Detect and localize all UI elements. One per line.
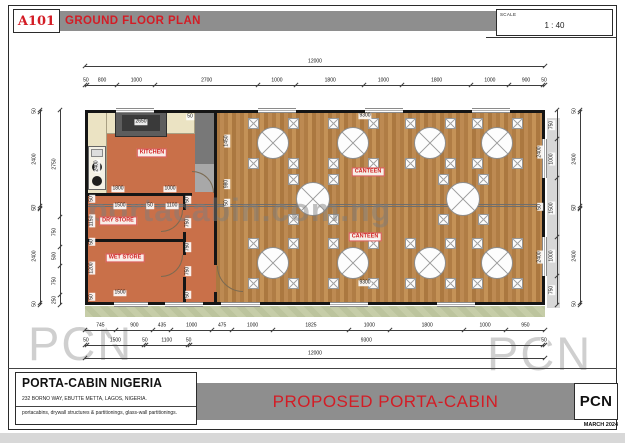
dimension-line	[85, 345, 545, 346]
room-label-canteen: CANTEEN	[352, 167, 385, 176]
grass-strip	[85, 306, 545, 317]
company-info-box: PORTA-CABIN NIGERIA 232 BORNO WAY, EBUTT…	[15, 372, 197, 425]
scale-box: SCALE 1 : 40	[496, 9, 613, 36]
dimension-label: 2400	[572, 250, 578, 263]
dimension-label: 745	[95, 323, 105, 329]
dimension-label: 2650	[134, 119, 147, 125]
drawing-title: GROUND FLOOR PLAN	[60, 15, 201, 27]
dimension-label: 1000	[377, 78, 390, 84]
logo-text: PCN	[580, 393, 613, 410]
dimension-label: 2750	[52, 157, 58, 170]
dimension-label: 1450	[224, 134, 230, 147]
room-label-kitchen: KITCHEN	[137, 148, 167, 157]
scale-label: SCALE	[500, 12, 516, 17]
watermark-url: portacabin.com.ng	[88, 192, 488, 229]
sheet-number: A101	[18, 14, 55, 29]
company-name: PORTA-CABIN NIGERIA	[22, 376, 162, 390]
dimension-label: 750	[185, 242, 191, 252]
window	[114, 302, 149, 307]
dimension-label: 2400	[32, 152, 38, 165]
dimension-label: 435	[157, 323, 167, 329]
project-title: PROPOSED PORTA-CABIN	[273, 392, 499, 412]
dimension-label: 750	[52, 227, 58, 237]
dimension-label: 2400	[94, 159, 100, 172]
window	[221, 302, 259, 307]
dimension-line	[85, 330, 545, 331]
dimension-label: 900	[521, 78, 531, 84]
store-divider-wall	[85, 239, 183, 242]
drawing-title-bar: GROUND FLOOR PLAN	[60, 11, 496, 31]
dimension-label: 950	[520, 323, 530, 329]
dimension-label: 1500	[109, 338, 122, 344]
window	[542, 139, 547, 178]
dimension-label: 1800	[111, 186, 124, 192]
dimension-label: 9300	[360, 338, 373, 344]
window	[472, 108, 510, 113]
watermark-pcn: PCN	[487, 326, 592, 381]
dimension-label: 1000	[185, 323, 198, 329]
dimension-label: 750	[549, 119, 555, 129]
dimension-label: 1000	[363, 323, 376, 329]
company-services: portacabins, drywall structures & partit…	[16, 406, 196, 424]
dimension-label: 1800	[421, 323, 434, 329]
dimension-label: 1500	[113, 203, 126, 209]
dimension-label: 1800	[430, 78, 443, 84]
dimension-label: 50	[89, 238, 95, 246]
dimension-label: 2400	[572, 152, 578, 165]
footer-rule	[8, 368, 617, 369]
scale-value: 1 : 40	[497, 21, 612, 30]
dimension-label: 750	[549, 285, 555, 295]
window	[330, 302, 368, 307]
dimension-label: 50	[537, 203, 543, 211]
dimension-label: 500	[52, 251, 58, 261]
sheet-number-box: A101	[13, 9, 60, 33]
room-label-canteen: CANTEEN	[349, 232, 382, 241]
dimension-label: 1000	[270, 78, 283, 84]
dimension-tick	[58, 303, 63, 308]
dimension-label: 50	[89, 293, 95, 301]
dimension-label: 2400	[537, 145, 543, 158]
drawing-date: MARCH 2024	[556, 422, 618, 428]
canteen-west-wall	[214, 110, 217, 265]
dimension-label: 1825	[304, 323, 317, 329]
dimension-label: 1500	[113, 290, 126, 296]
dimension-label: 1150	[89, 215, 95, 228]
dimension-label: 50	[89, 195, 95, 203]
dimension-label: 1000	[163, 186, 176, 192]
dimension-label: 1100	[166, 203, 179, 209]
room-label-dry-store: DRY STORE	[99, 216, 137, 225]
dimension-label: 50	[186, 114, 194, 120]
window	[437, 302, 475, 307]
window	[116, 108, 154, 113]
dimension-label: 800	[97, 78, 107, 84]
drawing-sheet: A101 GROUND FLOOR PLAN SCALE 1 : 40 port…	[0, 0, 625, 443]
window	[365, 108, 403, 113]
dimension-label: 1500	[549, 201, 555, 214]
dimension-label: 50	[185, 291, 191, 299]
dimension-label: 50	[224, 199, 230, 207]
dimension-line	[85, 358, 545, 359]
dimension-label: 9300	[358, 280, 371, 286]
dimension-label: 1000	[246, 323, 259, 329]
company-address: 232 BORNO WAY, EBUTTE METTA, LAGOS, NIGE…	[22, 396, 147, 402]
dimension-label: 1200	[89, 261, 95, 274]
dimension-label: 1000	[483, 78, 496, 84]
window	[258, 108, 296, 113]
dimension-label: 9300	[358, 113, 371, 119]
window	[542, 237, 547, 276]
dimension-label: 750	[185, 266, 191, 276]
dimension-label: 980	[224, 179, 230, 189]
dimension-label: 2700	[200, 78, 213, 84]
room-label-wet-store: WET STORE	[106, 253, 145, 262]
dimension-label: 50	[146, 203, 154, 209]
dimension-label: 2400	[537, 250, 543, 263]
dimension-label: 750	[185, 218, 191, 228]
dimension-label: 475	[217, 323, 227, 329]
dimension-label: 50	[185, 196, 191, 204]
window	[165, 302, 203, 307]
logo-box: PCN	[574, 383, 618, 420]
dimension-tick	[543, 64, 548, 69]
dimension-label: 2400	[32, 250, 38, 263]
dimension-line	[60, 110, 61, 305]
dimension-label: 12000	[307, 59, 323, 65]
dimension-label: 1000	[549, 152, 555, 165]
dimension-label: 1000	[130, 78, 143, 84]
dimension-label: 1800	[324, 78, 337, 84]
dimension-label: 900	[129, 323, 139, 329]
dimension-line	[85, 66, 545, 67]
project-title-bar: PROPOSED PORTA-CABIN	[197, 383, 574, 420]
dimension-label: 750	[52, 275, 58, 285]
dimension-label: 1000	[549, 250, 555, 263]
dimension-label: 1100	[160, 338, 173, 344]
dimension-label: 12000	[307, 351, 323, 357]
header-rule	[486, 37, 617, 38]
canteen-west-wall	[214, 292, 217, 305]
dimension-label: 1000	[479, 323, 492, 329]
